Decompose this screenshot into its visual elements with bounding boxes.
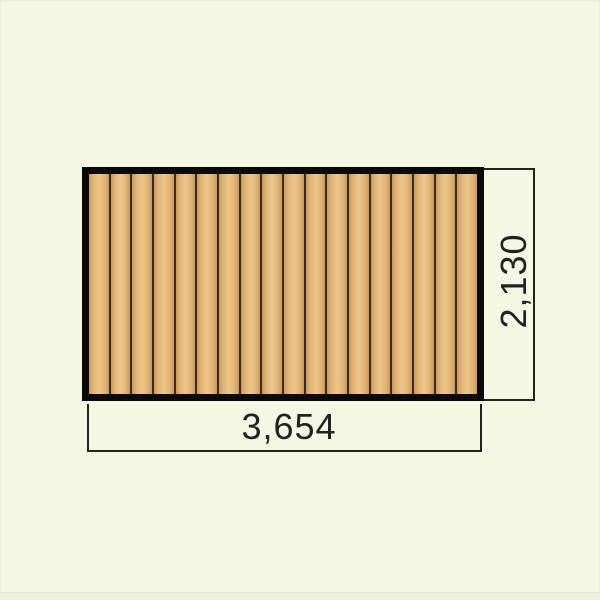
deck-plank [390,174,412,394]
deck-plank [304,174,326,394]
deck-plank [347,174,369,394]
deck-plank [152,174,174,394]
width-dimension-label: 3,654 [189,407,389,447]
deck-plank [130,174,152,394]
deck-plank [325,174,347,394]
deck-plank [260,174,282,394]
deck-plank [369,174,391,394]
deck-panel [82,167,484,401]
dimension-extension-line-bottom [484,399,535,401]
bottom-edge-shade [0,592,600,600]
width-dimension-line [87,450,482,452]
deck-plank [174,174,196,394]
deck-plank [89,174,109,394]
deck-plank [195,174,217,394]
deck-plank [217,174,239,394]
deck-plank [109,174,131,394]
drawing-canvas: 2,130 3,654 [0,0,600,600]
deck-plank [239,174,261,394]
deck-plank [455,174,477,394]
deck-plank [412,174,434,394]
height-dimension-label: 2,130 [494,201,534,361]
deck-planks [89,174,477,394]
deck-plank [282,174,304,394]
deck-plank [434,174,456,394]
dimension-extension-line-right [480,404,482,452]
dimension-extension-line-top [484,168,535,170]
dimension-extension-line-left [87,404,89,452]
